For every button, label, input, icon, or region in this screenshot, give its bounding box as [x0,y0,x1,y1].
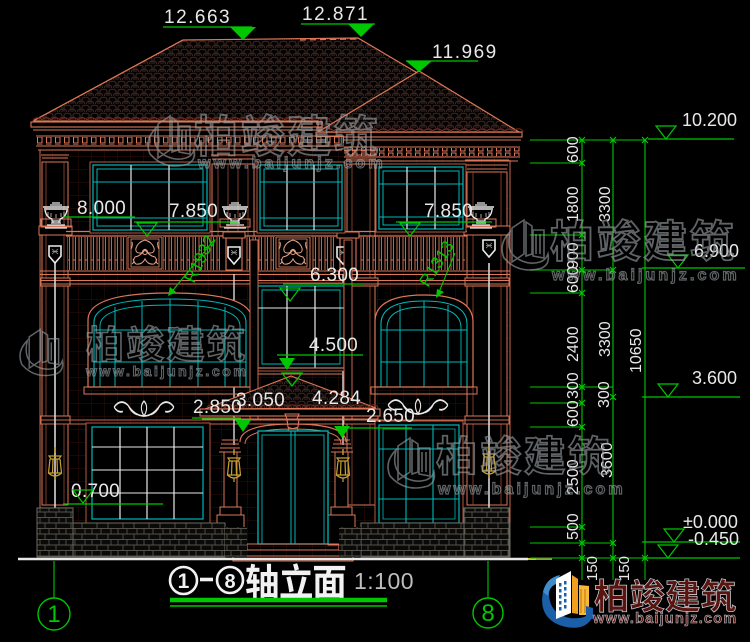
svg-text:1: 1 [178,570,190,593]
svg-text:6.300: 6.300 [310,265,359,286]
svg-text:500: 500 [565,513,582,540]
svg-text:2.850: 2.850 [193,397,242,418]
svg-text:3300: 3300 [597,321,614,357]
svg-text:11.969: 11.969 [432,42,498,63]
svg-text:2.650: 2.650 [366,406,415,427]
svg-text:-0.450: -0.450 [688,529,739,549]
svg-text:1:100: 1:100 [354,568,414,594]
svg-text:3.600: 3.600 [692,368,737,388]
svg-text:4.500: 4.500 [309,335,358,356]
svg-text:www.baijunjz.com: www.baijunjz.com [85,363,248,379]
svg-text:300: 300 [596,381,613,408]
svg-text:2400: 2400 [565,326,582,362]
svg-text:1: 1 [47,601,60,628]
svg-text:150: 150 [584,556,601,581]
svg-text:0.700: 0.700 [71,481,120,502]
svg-text:8: 8 [481,600,494,627]
svg-text:www.baijunjz.com: www.baijunjz.com [437,481,626,498]
svg-text:8.000: 8.000 [77,198,126,219]
svg-text:7.850: 7.850 [424,201,473,222]
svg-text:8: 8 [224,571,235,593]
svg-text:3300: 3300 [597,186,614,222]
svg-text:10650: 10650 [628,328,645,373]
svg-text:www.baijunjz.com: www.baijunjz.com [592,611,737,627]
svg-text:12.871: 12.871 [302,4,369,25]
svg-text:600: 600 [565,400,582,427]
svg-text:www.baijunjz.com: www.baijunjz.com [197,155,386,172]
svg-text:1800: 1800 [565,186,582,222]
svg-text:12.663: 12.663 [164,7,231,28]
svg-text:4.284: 4.284 [312,388,361,409]
svg-text:10.200: 10.200 [682,110,737,130]
svg-text:3.050: 3.050 [236,390,285,411]
svg-text:300: 300 [565,372,582,399]
svg-text:7.850: 7.850 [169,201,218,222]
svg-text:150: 150 [616,556,633,581]
svg-text:600: 600 [565,136,582,163]
svg-text:www.baijunjz.com: www.baijunjz.com [551,267,740,284]
